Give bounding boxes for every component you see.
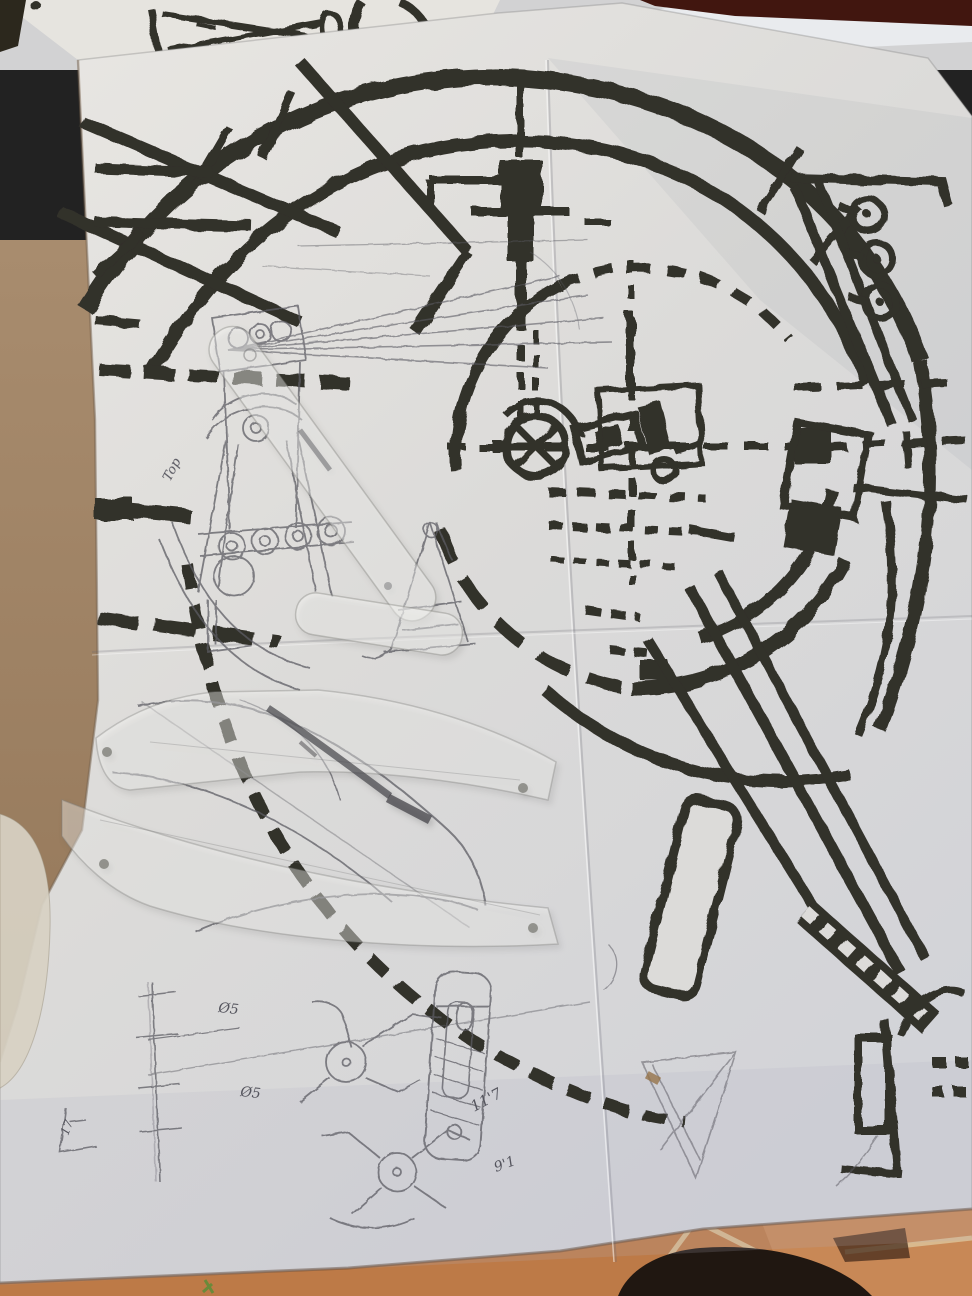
photo-of-blueprint: Top Ø5 Ø5 11'7 9'1 17 bbox=[0, 0, 972, 1296]
handwritten-diameter-2: Ø5 bbox=[239, 1084, 262, 1102]
handwritten-diameter-1: Ø5 bbox=[217, 1000, 240, 1018]
